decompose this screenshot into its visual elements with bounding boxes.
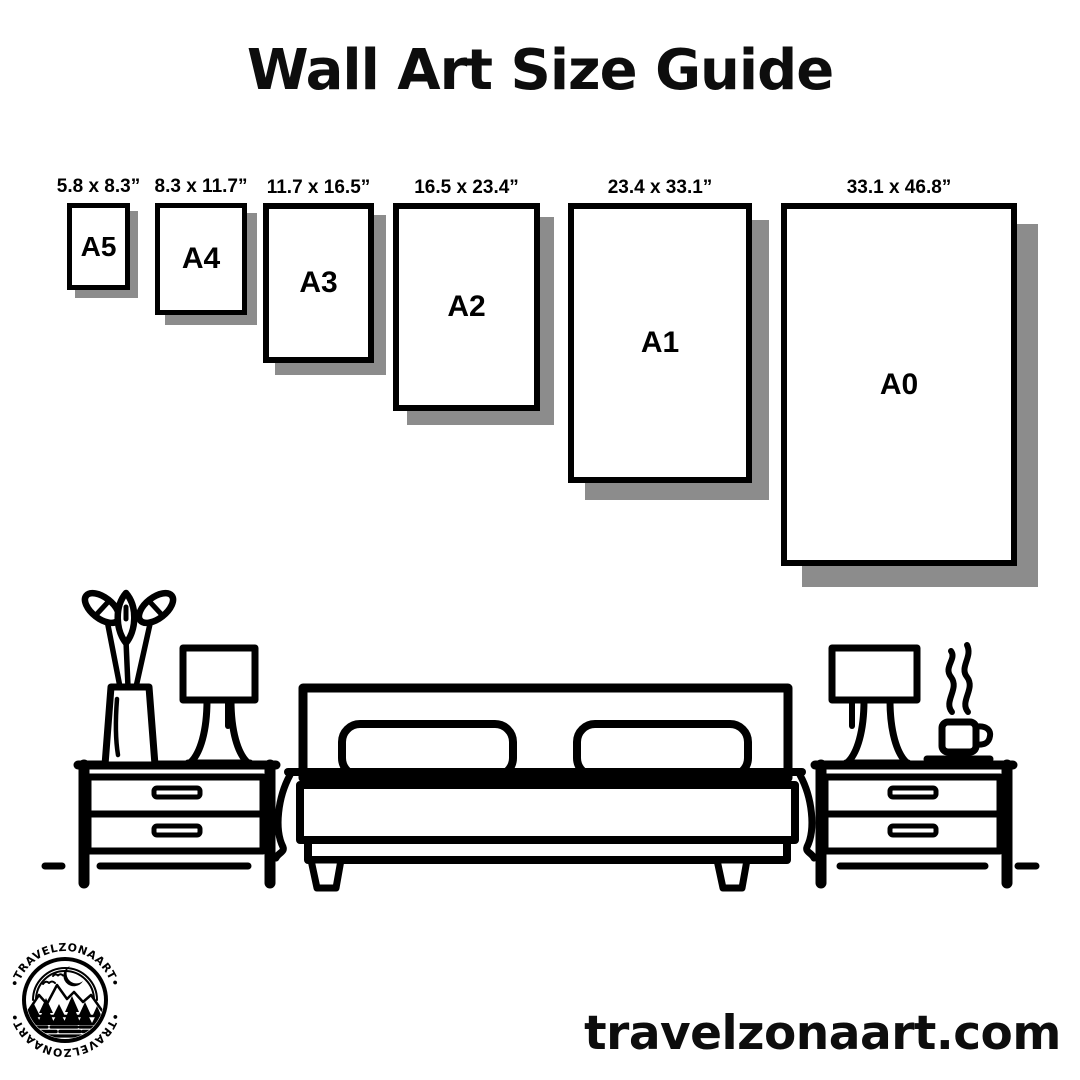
right-lamp: [832, 648, 917, 763]
a1-name-label: A1: [641, 326, 679, 360]
a2-dimensions-label: 16.5 x 23.4”: [414, 177, 519, 199]
badge-text-top: •TRAVELZONAART•: [8, 941, 122, 989]
a0-name-label: A0: [880, 368, 918, 402]
paper-size-a2: 16.5 x 23.4” A2: [393, 203, 540, 411]
a4-dimensions-label: 8.3 x 11.7”: [155, 176, 248, 198]
wall-art-size-guide-poster: Wall Art Size Guide 5.8 x 8.3” A5 8.3 x …: [0, 0, 1080, 1080]
left-lamp: [183, 648, 255, 763]
page-title: Wall Art Size Guide: [0, 38, 1080, 103]
a4-name-label: A4: [182, 242, 220, 276]
a3-dimensions-label: 11.7 x 16.5”: [267, 177, 371, 199]
paper-size-a0: 33.1 x 46.8” A0: [781, 203, 1017, 566]
coffee-cup: [927, 645, 990, 759]
a1-dimensions-label: 23.4 x 33.1”: [608, 177, 713, 199]
a3-name-label: A3: [299, 266, 337, 300]
paper-size-a1: 23.4 x 33.1” A1: [568, 203, 752, 483]
a0-dimensions-label: 33.1 x 46.8”: [847, 177, 952, 199]
cup-body: [942, 722, 976, 752]
blanket-drape-right: [800, 775, 814, 858]
paper-size-a5: 5.8 x 8.3” A5: [67, 203, 130, 290]
a2-name-label: A2: [447, 290, 485, 324]
bedroom-illustration: [40, 585, 1040, 895]
bed-base: [308, 840, 787, 860]
double-bed: [276, 688, 814, 888]
plant-vase: [80, 587, 178, 765]
brand-logo: •TRAVELZONAART• •TRAVELZONAART•: [3, 938, 127, 1062]
a5-dimensions-label: 5.8 x 8.3”: [57, 176, 140, 198]
bed-leg-left: [311, 860, 341, 888]
mattress: [300, 785, 795, 840]
steam: [948, 645, 969, 712]
paper-size-a3: 11.7 x 16.5” A3: [263, 203, 374, 363]
paper-size-a4: 8.3 x 11.7” A4: [155, 203, 247, 315]
a5-name-label: A5: [81, 231, 117, 263]
website-url: travelzonaart.com: [560, 1006, 1080, 1061]
bed-leg-right: [717, 860, 747, 888]
blanket-drape-left: [276, 775, 290, 858]
